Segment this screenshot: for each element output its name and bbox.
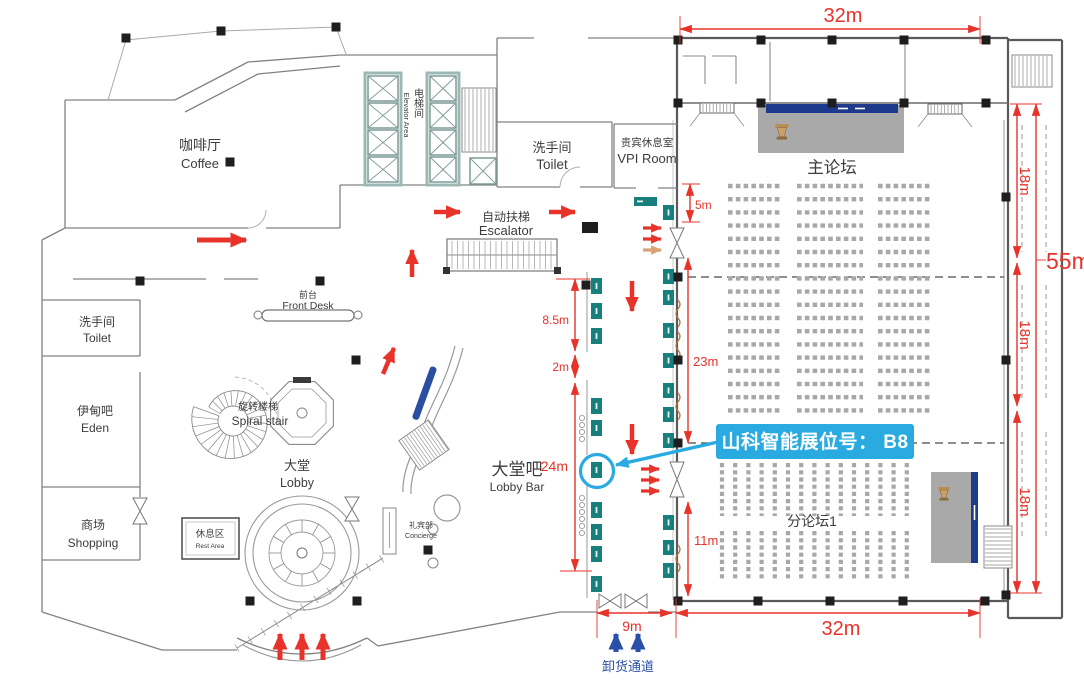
label-vip-zh: 贵宾休息室 xyxy=(621,136,674,149)
label-elevator-zh: 电梯间 xyxy=(412,87,424,119)
label-shopping-en: Shopping xyxy=(68,536,119,550)
column xyxy=(982,36,991,45)
label-lobby-en: Lobby xyxy=(280,476,315,490)
dim-5m: 5m xyxy=(695,198,712,212)
label-lobby-bar-zh: 大堂吧 xyxy=(492,460,543,479)
column xyxy=(246,597,255,606)
label-toilet-center-zh: 洗手间 xyxy=(532,140,571,155)
label-spiral-en: Spiral stair xyxy=(232,414,289,428)
dim-2m: 2m xyxy=(552,360,569,374)
column xyxy=(757,36,766,45)
door-icon xyxy=(599,594,621,608)
dim-24m: 24m xyxy=(541,458,568,474)
floor-plan: 山科智能展位号： B8 咖啡厅 Coffee 洗手间 Toilet 伊甸吧 Ed… xyxy=(0,0,1084,683)
canopy-edge xyxy=(108,27,346,100)
column xyxy=(757,99,766,108)
column xyxy=(353,597,362,606)
column xyxy=(899,597,908,606)
label-elevator-en: Elevator Area xyxy=(402,92,411,138)
label-rest-area-zh: 休息区 xyxy=(196,528,225,540)
column xyxy=(754,597,763,606)
column xyxy=(900,36,909,45)
dim-top-32m: 32m xyxy=(824,5,863,27)
column xyxy=(828,99,837,108)
door-icon xyxy=(670,462,684,497)
column xyxy=(826,597,835,606)
column xyxy=(217,27,226,36)
callout-text: 山科智能展位号： B8 xyxy=(721,430,908,453)
label-concierge-zh: 礼宾部 xyxy=(409,520,433,530)
label-escalator-zh: 自动扶梯 xyxy=(482,209,530,224)
column xyxy=(981,597,990,606)
column xyxy=(674,273,683,282)
column xyxy=(582,281,591,290)
floor-plan-canvas: 山科智能展位号： B8 咖啡厅 Coffee 洗手间 Toilet 伊甸吧 Ed… xyxy=(0,0,1084,683)
label-toilet-west-zh: 洗手间 xyxy=(79,315,115,329)
label-lobby-zh: 大堂 xyxy=(284,458,310,473)
door-icon xyxy=(670,228,684,258)
walls-layer xyxy=(42,38,1062,661)
label-coffee-zh: 咖啡厅 xyxy=(179,137,221,153)
column xyxy=(1002,356,1011,365)
stage-sub xyxy=(931,472,978,563)
column xyxy=(674,439,683,448)
label-eden-zh: 伊甸吧 xyxy=(77,404,113,418)
label-rest-area-en: Rest Area xyxy=(196,543,225,550)
room-labels: 咖啡厅 Coffee 洗手间 Toilet 伊甸吧 Eden 商场 Shoppi… xyxy=(68,87,857,674)
column xyxy=(1002,591,1011,600)
door-icon xyxy=(133,498,147,524)
column xyxy=(316,277,325,286)
dim-8-5m: 8.5m xyxy=(542,313,569,327)
label-front-desk-zh: 前台 xyxy=(299,289,317,300)
label-front-desk-en: Front Desk xyxy=(282,300,334,312)
dim-11m: 11m xyxy=(694,533,718,548)
label-shopping-zh: 商场 xyxy=(81,517,105,532)
dim-23m: 23m xyxy=(693,354,718,369)
label-main-forum: 主论坛 xyxy=(807,158,857,177)
exhibit-booths xyxy=(591,197,674,592)
label-toilet-west-en: Toilet xyxy=(83,331,112,345)
door-icon xyxy=(625,594,647,608)
column xyxy=(424,546,433,555)
label-toilet-center-en: Toilet xyxy=(536,157,568,172)
label-sub-forum-1: 分论坛1 xyxy=(787,513,837,529)
column xyxy=(982,99,991,108)
label-spiral-zh: 旋转楼梯 xyxy=(238,400,278,413)
column xyxy=(674,597,683,606)
label-concierge-en: Concierge xyxy=(405,533,437,540)
dim-bottom-32m: 32m xyxy=(822,618,861,640)
column xyxy=(674,36,683,45)
column xyxy=(1002,193,1011,202)
dim-18m-bottom: 18m xyxy=(1016,487,1033,516)
booth-callout: 山科智能展位号： B8 xyxy=(716,424,914,459)
column xyxy=(332,23,341,32)
column xyxy=(828,36,837,45)
column xyxy=(900,99,909,108)
column xyxy=(674,99,683,108)
door-icon xyxy=(345,497,359,521)
dim-18m-top: 18m xyxy=(1016,166,1033,195)
label-coffee-en: Coffee xyxy=(181,156,219,171)
column xyxy=(122,34,131,43)
column xyxy=(352,356,361,365)
flow-arrow xyxy=(383,348,394,374)
label-eden-en: Eden xyxy=(81,421,109,435)
label-unloading-channel: 卸货通道 xyxy=(602,659,654,674)
label-vip-en: VPI Room xyxy=(617,151,676,166)
dim-18m-middle: 18m xyxy=(1016,320,1033,349)
column xyxy=(674,356,683,365)
column xyxy=(136,277,145,286)
column xyxy=(226,158,235,167)
dim-9m: 9m xyxy=(622,618,641,634)
dim-55m: 55m xyxy=(1046,248,1084,274)
label-escalator-en: Escalator xyxy=(479,223,534,238)
label-lobby-bar-en: Lobby Bar xyxy=(490,480,545,494)
